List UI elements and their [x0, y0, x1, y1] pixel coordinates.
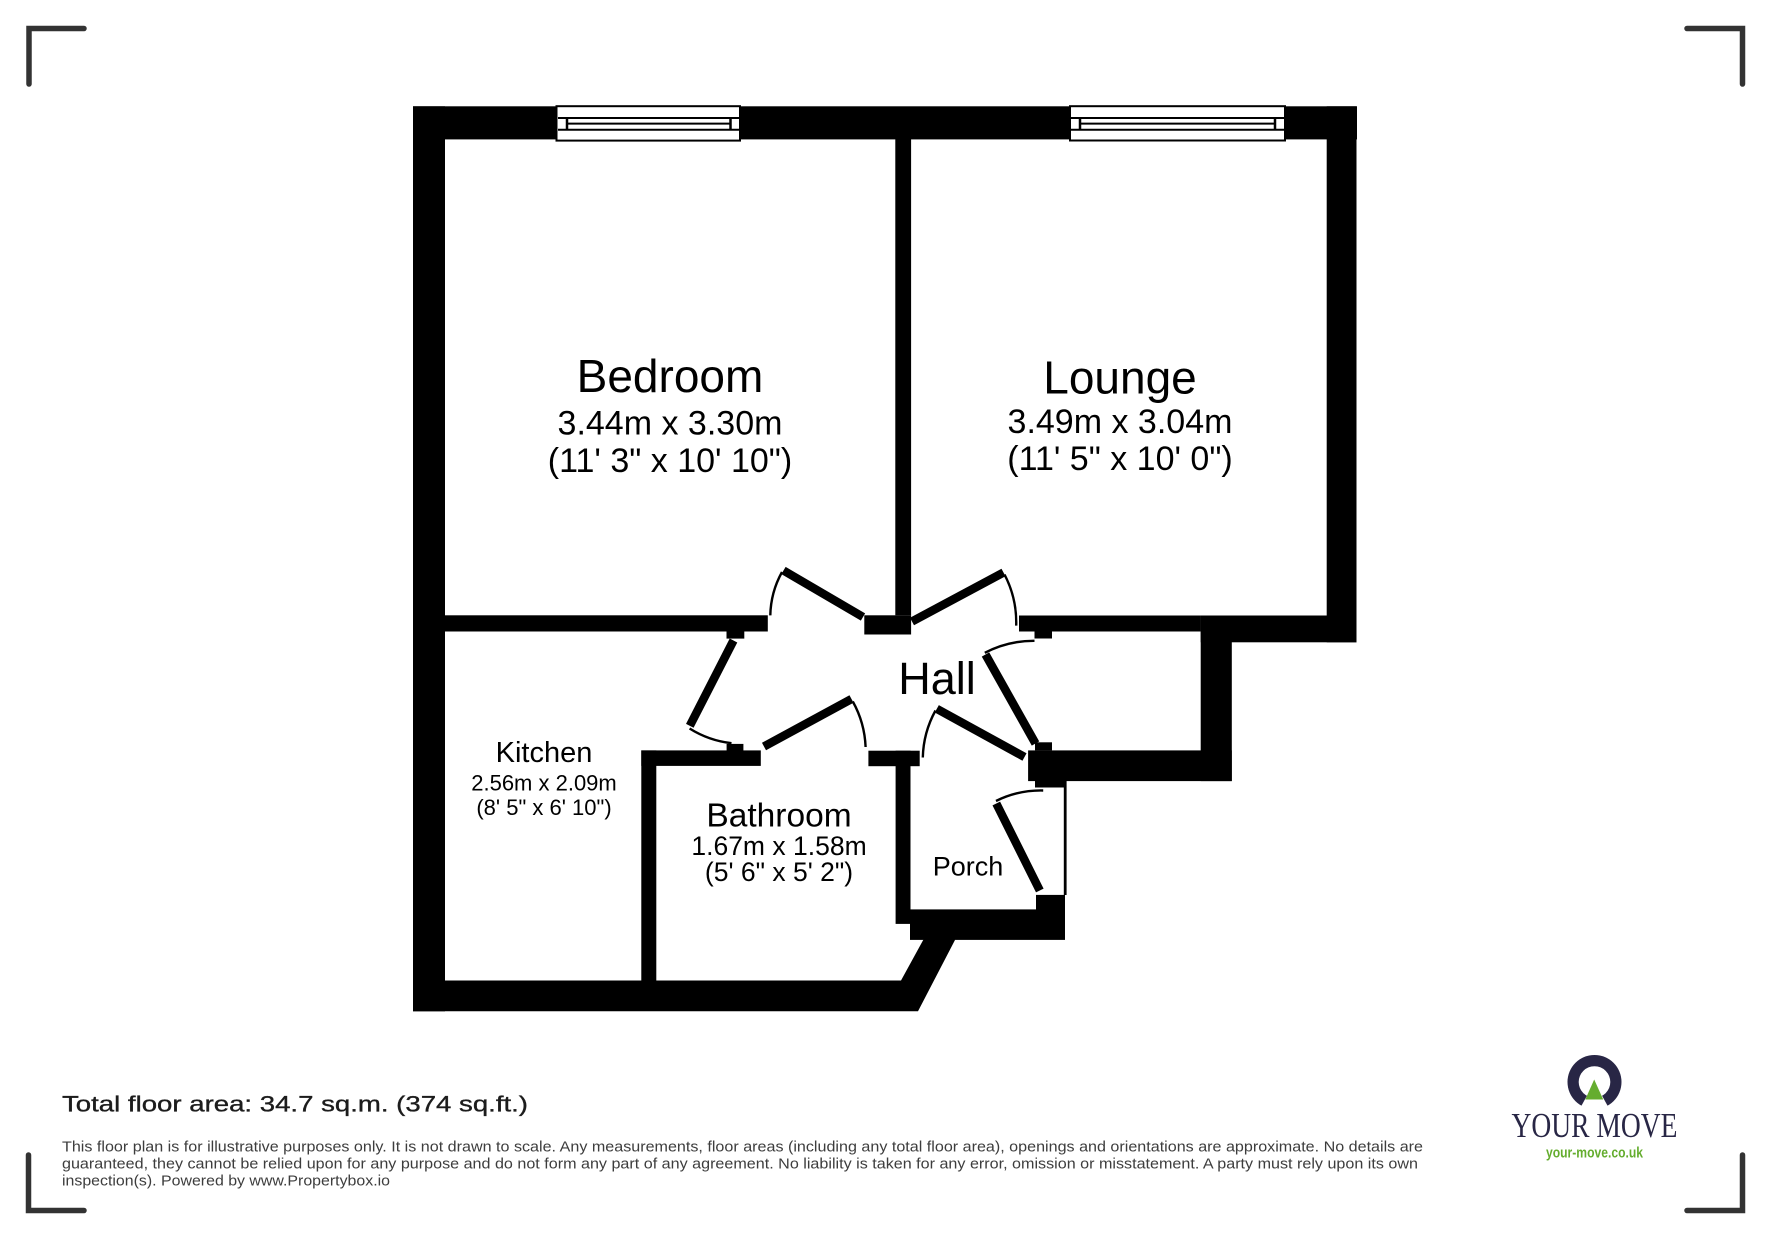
svg-text:This floor plan is for illustr: This floor plan is for illustrative purp… [62, 1139, 1423, 1156]
svg-text:your-move.co.uk: your-move.co.uk [1546, 1146, 1644, 1162]
svg-text:Bathroom: Bathroom [706, 798, 851, 835]
svg-text:(11' 5" x 10' 0"): (11' 5" x 10' 0") [1007, 440, 1232, 478]
svg-text:(5' 6" x 5' 2"): (5' 6" x 5' 2") [705, 857, 853, 887]
svg-text:3.44m x 3.30m: 3.44m x 3.30m [558, 405, 783, 443]
svg-text:inspection(s). Powered by www.: inspection(s). Powered by www.Propertybo… [62, 1172, 390, 1189]
svg-text:3.49m x 3.04m: 3.49m x 3.04m [1008, 403, 1233, 441]
svg-text:Porch: Porch [933, 852, 1004, 882]
svg-text:guaranteed, they cannot be rel: guaranteed, they cannot be relied upon f… [62, 1156, 1418, 1173]
svg-text:(8' 5" x 6' 10"): (8' 5" x 6' 10") [476, 795, 611, 820]
svg-text:(11' 3" x 10' 10"): (11' 3" x 10' 10") [548, 442, 792, 480]
svg-text:YOUR MOVE: YOUR MOVE [1512, 1106, 1678, 1145]
svg-text:Kitchen: Kitchen [496, 737, 593, 769]
svg-text:Hall: Hall [898, 653, 976, 704]
svg-text:Total floor area: 34.7 sq.m. (: Total floor area: 34.7 sq.m. (374 sq.ft.… [62, 1092, 528, 1117]
svg-text:2.56m x 2.09m: 2.56m x 2.09m [471, 771, 617, 796]
svg-text:Lounge: Lounge [1043, 352, 1197, 404]
svg-text:Bedroom: Bedroom [577, 350, 764, 402]
